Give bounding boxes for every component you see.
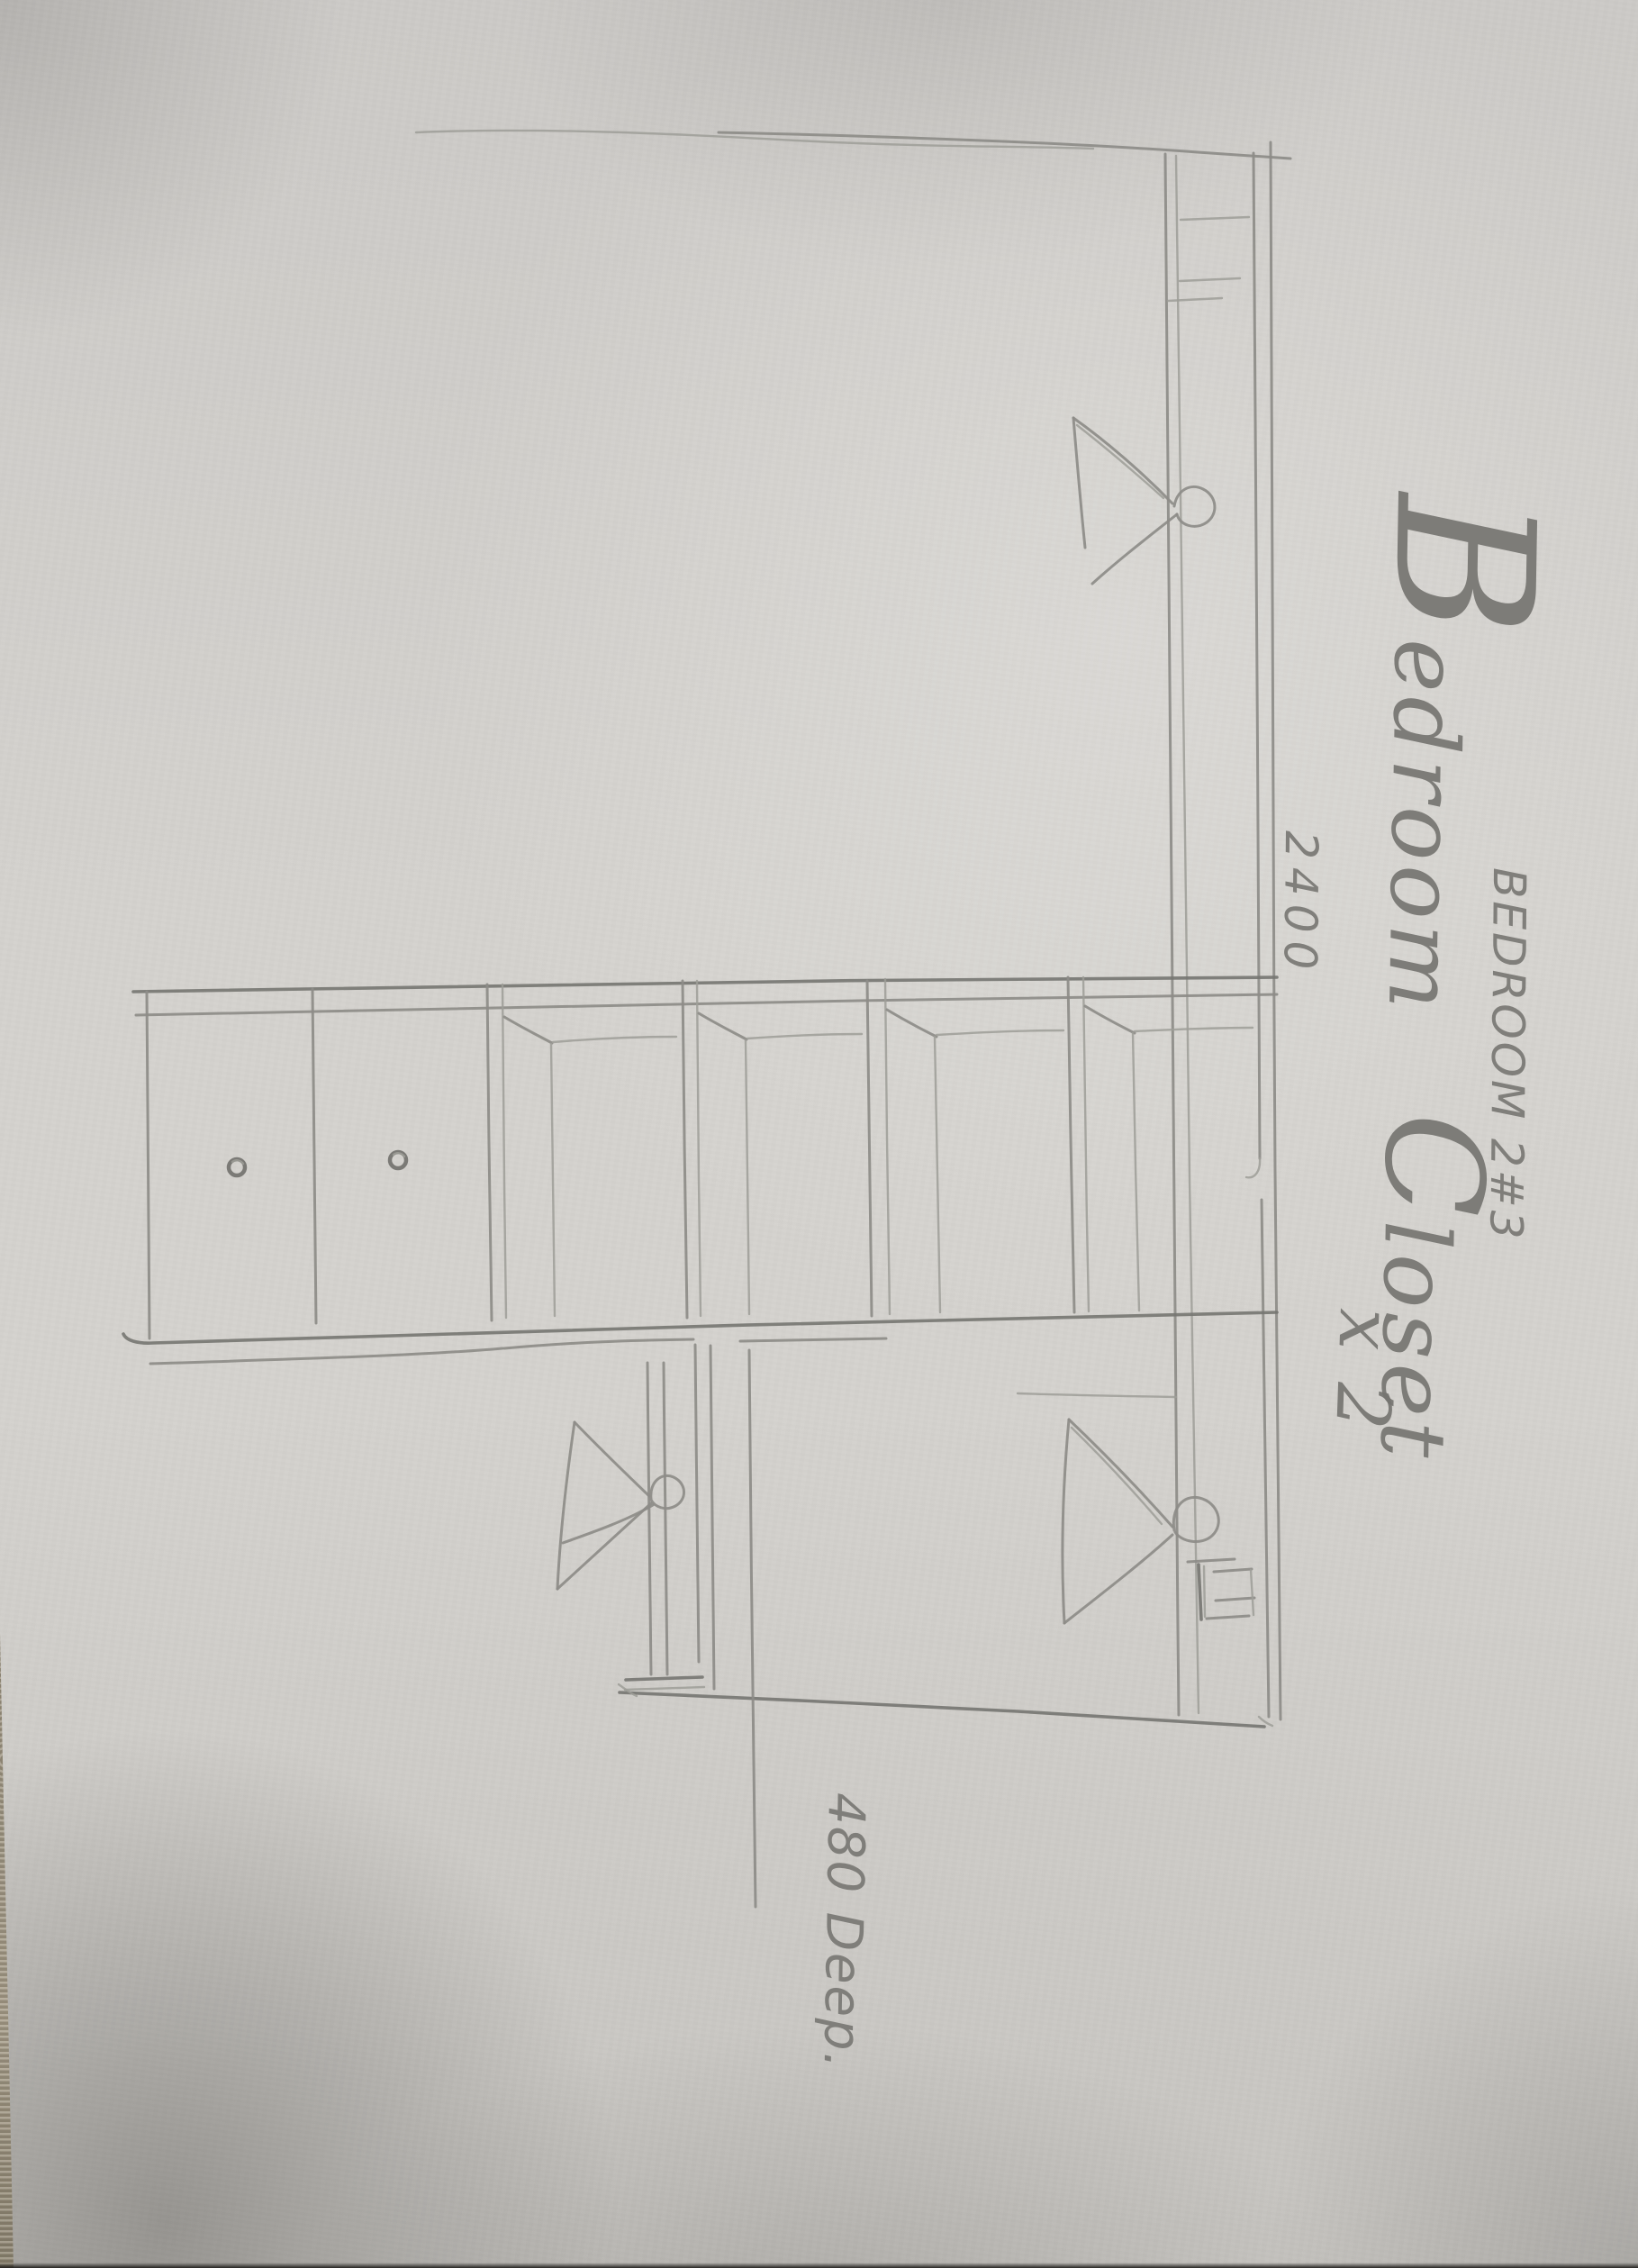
title-initial: C <box>1353 1111 1512 1222</box>
closet-top-line-inner <box>1262 1200 1269 1717</box>
rail-end-bar <box>626 1677 702 1680</box>
hatch-mark <box>1181 217 1249 220</box>
tower-edge <box>133 977 1277 992</box>
tower-edge <box>123 1312 1277 1343</box>
title-word: edroom <box>1368 638 1480 1014</box>
pencil-stroke <box>1018 1393 1176 1397</box>
door-knob-icon <box>232 1160 243 1164</box>
tower-edge <box>504 1339 693 1348</box>
closet-top-line-inner <box>1253 153 1260 1158</box>
hanging-rail-section <box>625 1345 714 1690</box>
hanger-stroke <box>575 1422 649 1496</box>
annotations: BEDROOM 2#3 BedroomCloset x 2 2400 480 D… <box>812 489 1576 2071</box>
shelf-divider <box>867 981 872 1316</box>
door-divider <box>312 989 316 1323</box>
door-knob-icon <box>394 1153 404 1157</box>
hanger-stroke <box>1069 1420 1172 1527</box>
tower-edge <box>150 1348 502 1364</box>
pencil-stroke <box>1216 1598 1254 1601</box>
hatch-mark <box>1180 278 1240 281</box>
photo-of-sketch: BEDROOM 2#3 BedroomCloset x 2 2400 480 D… <box>0 0 1638 2268</box>
hanger-stroke <box>1064 1535 1172 1623</box>
end-wall-line <box>620 1692 1264 1727</box>
depth-dimension-line <box>749 1350 756 1907</box>
shelf-divider <box>1083 977 1089 1311</box>
dimension-leader <box>749 1350 756 1907</box>
pencil-curl <box>1246 1158 1260 1177</box>
cubby-perspective-line <box>699 1013 747 1039</box>
title-initial: B <box>1351 489 1576 641</box>
pencil-stroke <box>1204 1566 1205 1617</box>
cubby-interior-line <box>553 1037 676 1042</box>
mid-shelf-line <box>710 1346 714 1689</box>
quantity-note: x 2 <box>1318 1307 1408 1436</box>
pencil-stroke <box>1251 1570 1253 1615</box>
hanger-stroke <box>563 1505 653 1543</box>
wall-line <box>719 132 1290 159</box>
hanger-stroke <box>1077 425 1163 498</box>
shelf-divider <box>1068 977 1074 1312</box>
cubby-interior-line <box>1133 1033 1139 1311</box>
top-shelf-line <box>1165 154 1179 1715</box>
shelf-divider <box>683 981 687 1318</box>
dimension-2400-label: 2400 <box>1274 830 1327 978</box>
cubby-perspective-line <box>887 1010 937 1037</box>
top-shelf-line <box>1176 156 1199 1713</box>
tower-end-panel <box>147 992 149 1338</box>
cubby-interior-line <box>1135 1028 1253 1031</box>
hanging-rail-line <box>647 1363 651 1674</box>
cubby-interior-line <box>937 1030 1063 1035</box>
hanger-stroke <box>557 1503 651 1589</box>
cubby-perspective-line <box>1085 1006 1135 1033</box>
shelf-divider <box>502 984 506 1318</box>
cubby-interior-line <box>746 1040 749 1314</box>
pencil-stroke <box>1188 1559 1235 1562</box>
cubby-perspective-line <box>504 1017 552 1043</box>
rail-end-bar <box>625 1687 704 1690</box>
pencil-stroke <box>1199 1565 1201 1619</box>
closet-tower <box>123 977 1277 1364</box>
hanger-symbol <box>1073 418 1215 584</box>
hatch-mark <box>1168 298 1222 301</box>
hanger-stroke <box>1072 1428 1162 1524</box>
shelf-divider <box>487 984 492 1320</box>
pencil-stroke <box>1259 1717 1272 1726</box>
hanger-stroke <box>1092 514 1177 584</box>
tower-edge <box>136 994 1277 1015</box>
tower-edge <box>740 1338 886 1341</box>
closet-sketch-drawing: BEDROOM 2#3 BedroomCloset x 2 2400 480 D… <box>0 0 1638 2268</box>
cubby-interior-line <box>747 1034 862 1039</box>
pencil-stroke <box>1207 1616 1249 1619</box>
hanger-stroke <box>1073 418 1172 503</box>
mid-shelf-line <box>695 1345 699 1662</box>
room-outline <box>416 131 1290 1727</box>
hanger-stroke <box>1073 418 1085 548</box>
shelf-divider <box>697 981 701 1316</box>
hanger-hook <box>651 1475 684 1508</box>
hanger-stroke <box>557 1422 575 1589</box>
hanger-stroke <box>1063 1420 1069 1623</box>
shelf-divider <box>885 979 890 1314</box>
cubby-interior-line <box>551 1044 555 1316</box>
cubby-interior-line <box>935 1037 940 1312</box>
pencil-stroke <box>1214 1569 1252 1572</box>
hanging-rail-line <box>664 1363 667 1674</box>
dimension-480-label: 480 Deep. <box>812 1792 875 2071</box>
